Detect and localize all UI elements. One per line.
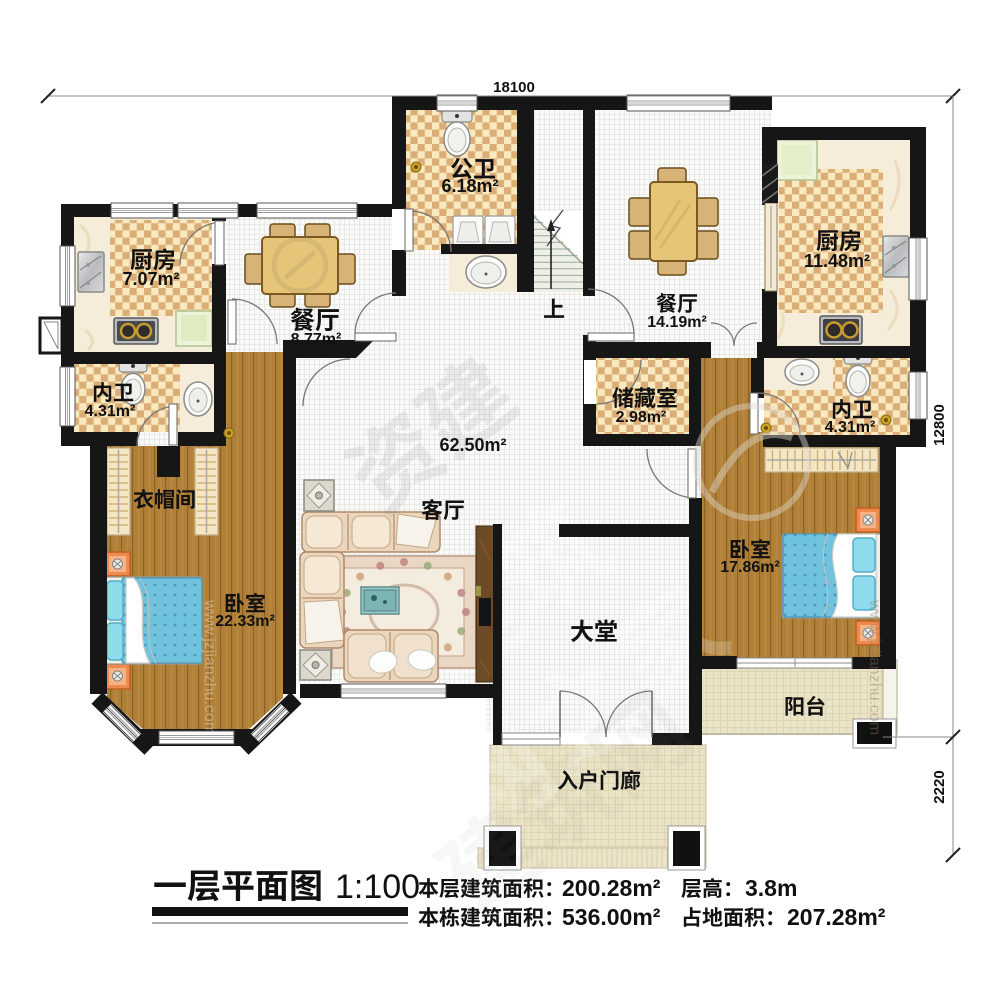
svg-text:17.86m²: 17.86m² bbox=[720, 559, 780, 576]
svg-text:4.31m²: 4.31m² bbox=[825, 419, 876, 436]
svg-text:8.77m²: 8.77m² bbox=[291, 331, 342, 348]
svg-text:2.98m²: 2.98m² bbox=[616, 409, 667, 426]
svg-text:4.31m²: 4.31m² bbox=[85, 403, 136, 420]
svg-text:18100: 18100 bbox=[493, 79, 535, 96]
svg-text:14.19m²: 14.19m² bbox=[647, 314, 707, 331]
svg-text:1:100: 1:100 bbox=[335, 868, 420, 906]
svg-text:11.48m²: 11.48m² bbox=[804, 251, 870, 271]
svg-text:www.jzjianzhu.com: www.jzjianzhu.com bbox=[201, 599, 218, 735]
svg-text:536.00m²: 536.00m² bbox=[562, 904, 661, 930]
svg-text:6.18m²: 6.18m² bbox=[441, 176, 498, 196]
svg-text:200.28m²: 200.28m² bbox=[562, 875, 661, 901]
svg-text:207.28m²: 207.28m² bbox=[787, 904, 886, 930]
svg-text:www.jzjianzhu.com: www.jzjianzhu.com bbox=[866, 599, 883, 735]
svg-text:7.07m²: 7.07m² bbox=[122, 269, 179, 289]
svg-text:12800: 12800 bbox=[931, 404, 948, 446]
svg-text:2220: 2220 bbox=[931, 770, 948, 803]
svg-text:22.33m²: 22.33m² bbox=[215, 613, 275, 630]
svg-text:3.8m: 3.8m bbox=[745, 875, 797, 901]
